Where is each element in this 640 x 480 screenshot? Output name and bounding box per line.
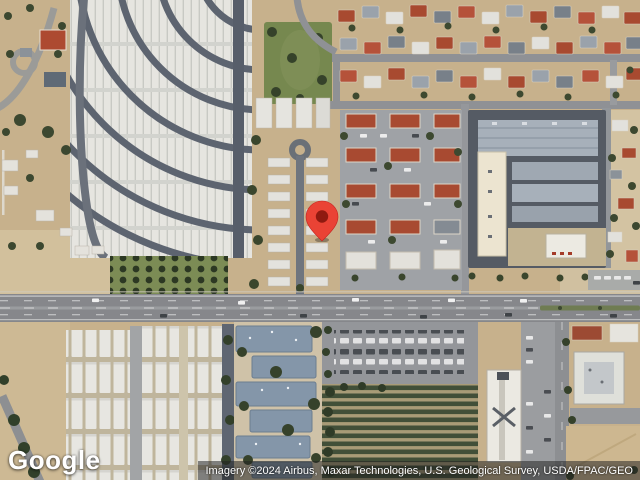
map-attribution: Imagery ©2024 Airbus, Maxar Technologies… (198, 461, 640, 480)
industrial-building (468, 110, 606, 268)
map-viewport[interactable]: Google Imagery ©2024 Airbus, Maxar Techn… (0, 0, 640, 480)
arterial-road (0, 294, 640, 322)
green-park (264, 22, 332, 104)
location-pin-icon[interactable] (305, 200, 339, 242)
condo-complex (340, 110, 462, 290)
attribution-text: Imagery ©2024 Airbus, Maxar Technologies… (205, 465, 633, 477)
plant-nursery (322, 322, 478, 480)
apartment-complex (234, 322, 322, 480)
google-logo[interactable]: Google (8, 445, 101, 476)
